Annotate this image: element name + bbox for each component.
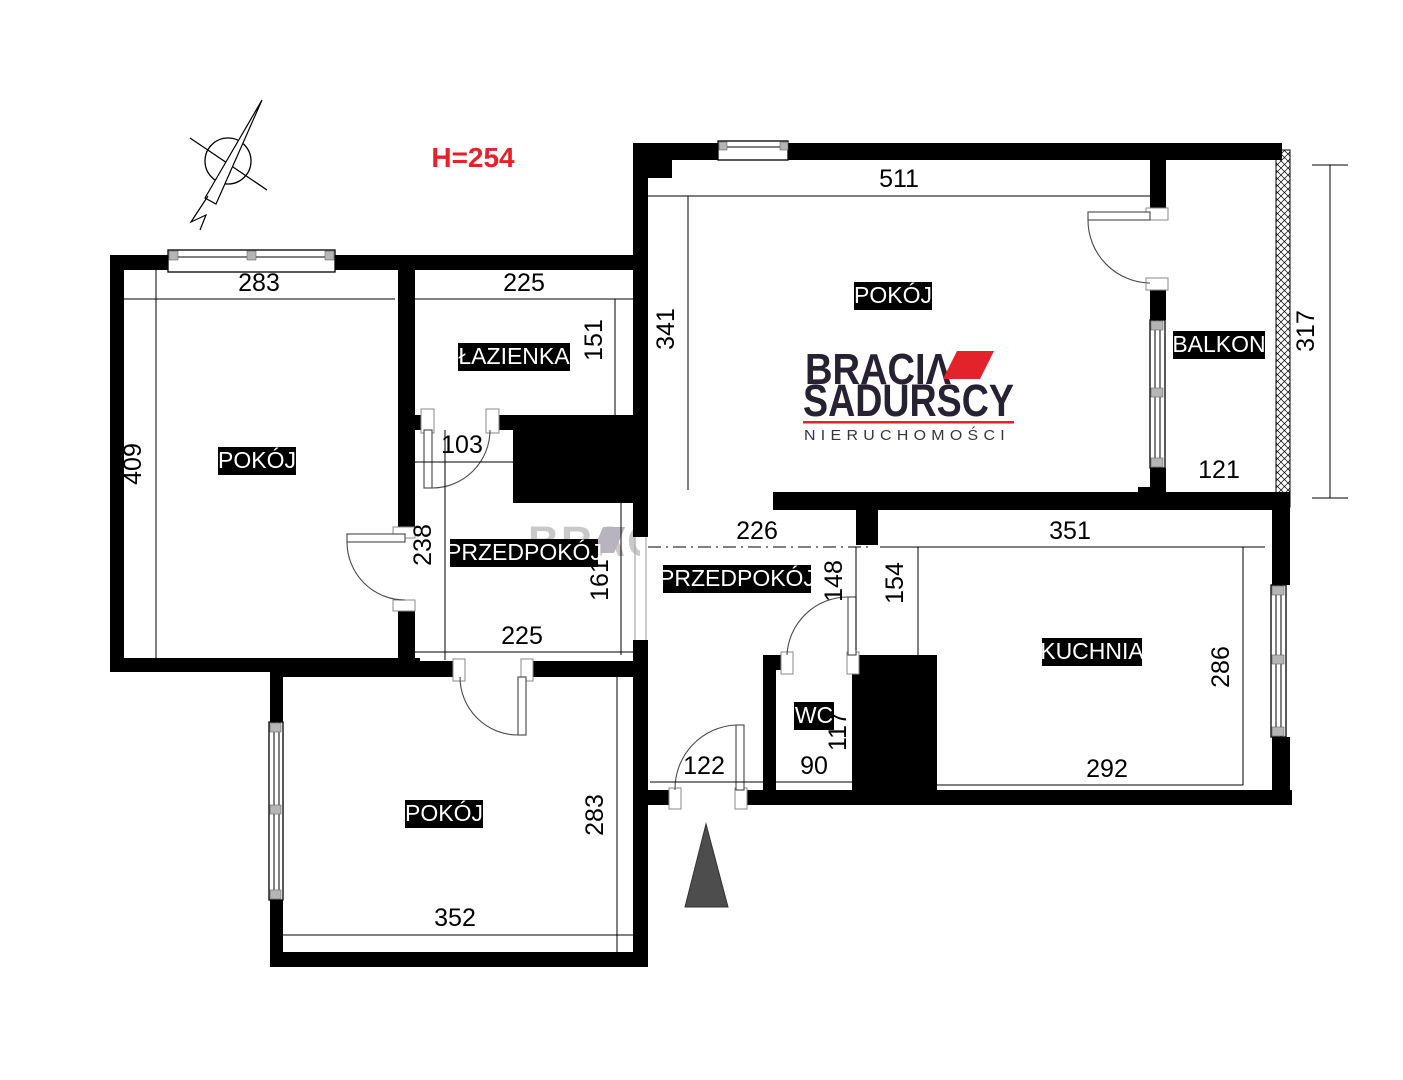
dim-bathroom-height: 151 xyxy=(580,299,615,415)
svg-text:122: 122 xyxy=(683,752,725,780)
door-room-bottom xyxy=(453,659,533,735)
svg-text:121: 121 xyxy=(1198,456,1240,484)
svg-text:ŁAZIENKA: ŁAZIENKA xyxy=(458,343,570,369)
dim-hallway-left-width: 225 xyxy=(415,622,633,652)
dim-room-bottom-height: 283 xyxy=(581,677,617,952)
svg-text:226: 226 xyxy=(736,517,778,545)
label-room-top-right: POKÓJ xyxy=(854,282,932,310)
svg-text:286: 286 xyxy=(1207,646,1235,688)
label-hallway-middle: PRZEDPOKÓJ xyxy=(659,565,815,593)
svg-text:511: 511 xyxy=(879,165,919,193)
window-kitchen xyxy=(1271,585,1286,737)
svg-text:283: 283 xyxy=(581,794,609,836)
label-wc: WC xyxy=(794,702,834,730)
svg-text:POKÓJ: POKÓJ xyxy=(854,282,932,308)
svg-text:POKÓJ: POKÓJ xyxy=(218,447,296,473)
entrance-arrow-icon xyxy=(685,824,728,907)
logo: BRACIΛ SADURSCY NIERUCHOMOŚCI xyxy=(803,345,1014,444)
svg-text:238: 238 xyxy=(409,524,437,566)
dim-room-left-width: 283 xyxy=(124,269,395,299)
balcony-hatch-wall xyxy=(1276,150,1290,507)
dim-kitchen-height: 286 xyxy=(1207,547,1243,785)
svg-text:PRZEDPOKÓJ: PRZEDPOKÓJ xyxy=(659,565,815,591)
svg-text:154: 154 xyxy=(881,562,909,604)
label-room-left: POKÓJ xyxy=(218,447,296,475)
svg-text:151: 151 xyxy=(580,319,608,361)
svg-text:317: 317 xyxy=(1292,310,1320,352)
door-room-left xyxy=(347,527,415,611)
logo-divider xyxy=(803,421,1014,424)
label-hallway-left: PRZEDPOKÓJ xyxy=(446,539,602,567)
svg-text:148: 148 xyxy=(820,560,848,602)
shaft-bathroom xyxy=(513,415,637,503)
window-room-bottom xyxy=(269,722,283,900)
wc-left-wall xyxy=(763,655,776,793)
svg-text:341: 341 xyxy=(652,308,680,350)
svg-text:PRZEDPOKÓJ: PRZEDPOKÓJ xyxy=(446,539,602,565)
door-wc xyxy=(781,597,859,674)
dim-balcony-height: 317 xyxy=(1292,165,1348,498)
svg-text:103: 103 xyxy=(441,431,483,459)
svg-text:225: 225 xyxy=(501,622,543,650)
dim-kitchen-width-top: 351 xyxy=(880,517,1265,547)
ceiling-height-note: H=254 xyxy=(431,142,515,173)
label-bathroom: ŁAZIENKA xyxy=(458,343,570,371)
dim-room-topright-width: 511 xyxy=(648,165,1152,196)
logo-line2: SADURSCY xyxy=(803,375,1014,426)
svg-text:351: 351 xyxy=(1049,517,1091,545)
svg-text:283: 283 xyxy=(238,269,280,297)
svg-text:225: 225 xyxy=(503,269,545,297)
shaft-kitchen xyxy=(852,655,937,793)
svg-text:WC: WC xyxy=(795,702,833,728)
floor-plan: BRACIΛ xyxy=(0,0,1403,1080)
door-balcony xyxy=(1088,208,1168,290)
svg-text:292: 292 xyxy=(1086,755,1128,783)
svg-text:409: 409 xyxy=(119,443,147,485)
svg-text:KUCHNIA: KUCHNIA xyxy=(1040,638,1144,664)
label-balcony: BALKON xyxy=(1172,331,1265,359)
svg-text:352: 352 xyxy=(434,904,476,932)
dim-balcony-width: 121 xyxy=(1198,456,1240,484)
north-arrow-icon xyxy=(190,100,267,230)
logo-line3: NIERUCHOMOŚCI xyxy=(804,426,1010,444)
dim-entry-door: 122 xyxy=(650,752,763,782)
dim-room-bottom-width: 352 xyxy=(283,904,633,935)
dim-room-left-height: 409 xyxy=(119,270,156,658)
dim-kitchen-width-bottom: 292 xyxy=(937,755,1243,785)
dim-kitchen-entry: 154 xyxy=(881,547,918,658)
svg-text:90: 90 xyxy=(800,752,828,780)
label-room-bottom: POKÓJ xyxy=(405,800,483,828)
svg-text:BALKON: BALKON xyxy=(1172,331,1265,357)
dim-bathroom-width: 225 xyxy=(415,269,633,299)
windows xyxy=(168,141,1286,900)
svg-text:POKÓJ: POKÓJ xyxy=(405,800,483,826)
dim-room-topright-height: 341 xyxy=(652,196,688,490)
window-balcony xyxy=(1150,320,1165,468)
label-kitchen: KUCHNIA xyxy=(1040,638,1144,666)
dim-hallway-middle-width: 226 xyxy=(648,517,868,547)
window-room-topright-top xyxy=(718,141,788,160)
dim-wc-width: 90 xyxy=(776,752,852,782)
